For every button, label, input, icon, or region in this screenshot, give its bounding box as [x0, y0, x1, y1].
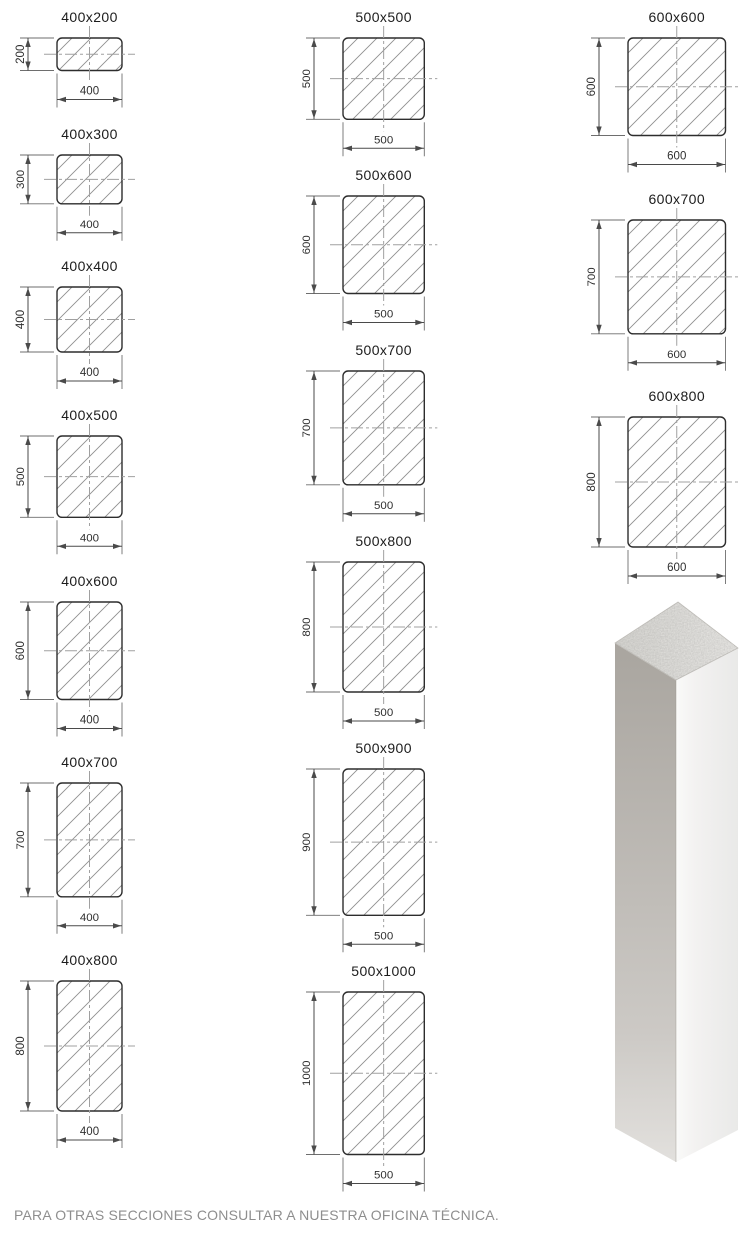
dim-width-label: 500 — [374, 500, 393, 512]
section-400x500: 400x500400500 — [9, 408, 136, 565]
section-title: 400x800 — [43, 953, 136, 968]
section-title: 500x500 — [329, 10, 438, 25]
dim-width: 500 — [343, 297, 424, 331]
section-drawing: 400500 — [9, 423, 136, 565]
dim-height-label: 400 — [15, 310, 27, 329]
section-title: 400x600 — [43, 574, 136, 589]
section-400x300: 400x300400300 — [9, 127, 136, 252]
dim-height-label: 200 — [15, 45, 27, 64]
dim-height-label: 700 — [15, 830, 27, 849]
section-400x700: 400x700400700 — [9, 755, 136, 945]
section-500x600: 500x600500600 — [295, 168, 438, 342]
dim-width: 500 — [343, 1157, 424, 1191]
section-drawing: 400600 — [9, 589, 136, 748]
dim-height-label: 500 — [15, 467, 27, 486]
dim-width: 400 — [57, 702, 122, 736]
section-drawing: 500600 — [295, 183, 438, 342]
dim-height-label: 300 — [15, 169, 27, 188]
sections-column-500-series: 500x500500500500x600500600500x7005007005… — [295, 10, 438, 1203]
section-drawing: 600800 — [580, 404, 740, 595]
concrete-column-3d-illustration — [610, 598, 748, 1168]
section-400x600: 400x600400600 — [9, 574, 136, 748]
section-title: 500x800 — [329, 534, 438, 549]
section-drawing: 500900 — [295, 756, 438, 963]
section-500x900: 500x900500900 — [295, 741, 438, 963]
dim-width-label: 400 — [80, 218, 99, 230]
dim-width-label: 600 — [667, 151, 686, 163]
section-500x800: 500x800500800 — [295, 534, 438, 740]
dim-width-label: 500 — [374, 309, 393, 321]
section-drawing: 400300 — [9, 142, 136, 252]
page: 400x200400200400x300400300400x4004004004… — [0, 0, 750, 1238]
section-drawing: 400700 — [9, 770, 136, 945]
dim-width-label: 500 — [374, 707, 393, 719]
section-title: 400x300 — [43, 127, 136, 142]
section-title: 500x1000 — [329, 964, 438, 979]
dim-width-label: 400 — [80, 714, 99, 726]
column-right-face — [676, 648, 738, 1162]
section-600x600: 600x600600600 — [580, 10, 740, 184]
dim-height-label: 800 — [15, 1036, 27, 1055]
dim-height-label: 800 — [586, 473, 598, 492]
dim-width-label: 400 — [80, 1126, 99, 1138]
sections-column-400-series: 400x200400200400x300400300400x4004004004… — [9, 10, 136, 1167]
dim-height-label: 500 — [301, 69, 313, 88]
section-500x700: 500x700500700 — [295, 343, 438, 533]
dim-height-label: 900 — [301, 832, 313, 851]
section-drawing: 600600 — [580, 25, 740, 184]
column-left-face — [615, 643, 676, 1162]
section-title: 400x500 — [43, 408, 136, 423]
section-drawing: 500500 — [295, 25, 438, 167]
sections-column-600-series: 600x600600600600x700600700600x800600800 — [580, 10, 740, 603]
dim-width: 500 — [343, 918, 424, 952]
dim-width-label: 500 — [374, 930, 393, 942]
section-600x700: 600x700600700 — [580, 192, 740, 382]
dim-width-label: 600 — [667, 348, 686, 360]
footer-note: PARA OTRAS SECCIONES CONSULTAR A NUESTRA… — [14, 1207, 499, 1223]
section-400x200: 400x200400200 — [9, 10, 136, 119]
section-title: 500x700 — [329, 343, 438, 358]
dim-height-label: 800 — [301, 617, 313, 636]
section-title: 600x800 — [614, 389, 740, 404]
section-drawing: 500800 — [295, 549, 438, 740]
section-title: 500x900 — [329, 741, 438, 756]
section-drawing: 400400 — [9, 274, 136, 400]
section-600x800: 600x800600800 — [580, 389, 740, 595]
section-drawing: 400800 — [9, 968, 136, 1159]
section-drawing: 400200 — [9, 25, 136, 119]
dim-width-label: 400 — [80, 86, 99, 98]
dim-height-label: 700 — [586, 267, 598, 286]
section-title: 400x400 — [43, 259, 136, 274]
dim-width: 600 — [628, 139, 726, 173]
section-drawing: 500700 — [295, 358, 438, 533]
dim-height-label: 600 — [586, 77, 598, 96]
dim-width-label: 500 — [374, 134, 393, 146]
dim-width-label: 600 — [667, 562, 686, 574]
dim-height-label: 700 — [301, 418, 313, 437]
section-title: 600x700 — [614, 192, 740, 207]
dim-width-label: 400 — [80, 912, 99, 924]
dim-height-label: 600 — [301, 235, 313, 254]
dim-width-label: 400 — [80, 367, 99, 379]
section-500x500: 500x500500500 — [295, 10, 438, 167]
dim-width-label: 400 — [80, 533, 99, 545]
section-500x1000: 500x10005001000 — [295, 964, 438, 1203]
section-400x400: 400x400400400 — [9, 259, 136, 400]
section-400x800: 400x800400800 — [9, 953, 136, 1159]
section-title: 600x600 — [614, 10, 740, 25]
section-drawing: 5001000 — [295, 979, 438, 1203]
section-drawing: 600700 — [580, 207, 740, 382]
section-title: 400x700 — [43, 755, 136, 770]
dim-width-label: 500 — [374, 1169, 393, 1181]
section-title: 400x200 — [43, 10, 136, 25]
section-title: 500x600 — [329, 168, 438, 183]
dim-height-label: 600 — [15, 641, 27, 660]
dim-height-label: 1000 — [301, 1060, 313, 1086]
